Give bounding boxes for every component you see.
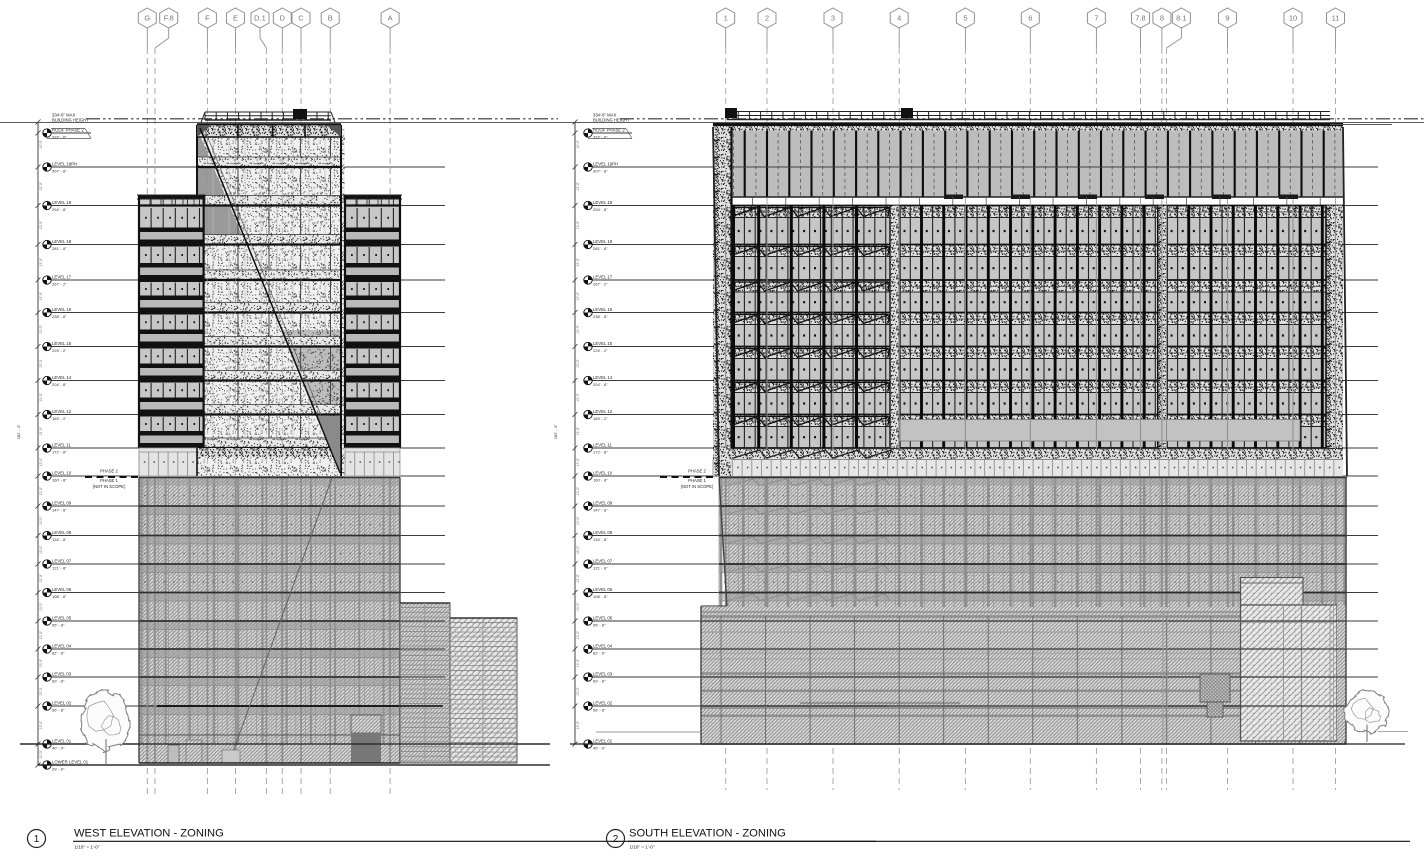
svg-text:281' - 8": 281' - 8" xyxy=(593,246,608,251)
svg-text:B: B xyxy=(328,14,333,23)
svg-text:BUILDING HEIGHT: BUILDING HEIGHT xyxy=(593,118,630,123)
svg-text:LEVEL 18: LEVEL 18 xyxy=(593,239,613,244)
svg-text:13'-0": 13'-0" xyxy=(576,220,580,229)
svg-text:LEVEL 04: LEVEL 04 xyxy=(52,644,72,649)
svg-text:PHASE 2: PHASE 2 xyxy=(688,469,706,474)
svg-text:LEVEL 08: LEVEL 08 xyxy=(52,530,72,535)
svg-text:172' - 8": 172' - 8" xyxy=(593,450,608,455)
svg-text:1: 1 xyxy=(724,14,728,23)
svg-text:56' - 8": 56' - 8" xyxy=(593,708,606,713)
svg-text:F: F xyxy=(205,14,210,23)
svg-text:13'-0": 13'-0" xyxy=(39,220,43,229)
svg-text:13'-0": 13'-0" xyxy=(576,291,580,300)
svg-text:40' - 0": 40' - 0" xyxy=(593,746,606,751)
svg-text:189' - 2": 189' - 2" xyxy=(593,416,608,421)
svg-text:13'-0": 13'-0" xyxy=(576,630,580,639)
svg-text:13'-0": 13'-0" xyxy=(39,457,43,466)
svg-text:LEVEL 09: LEVEL 09 xyxy=(593,501,613,506)
svg-text:LEVEL 11: LEVEL 11 xyxy=(593,443,612,448)
svg-text:LEVEL 05: LEVEL 05 xyxy=(52,616,72,621)
svg-text:13'-0": 13'-0" xyxy=(576,257,580,266)
svg-text:82' - 8": 82' - 8" xyxy=(52,651,65,656)
svg-text:225' - 2": 225' - 2" xyxy=(52,348,67,353)
svg-text:2: 2 xyxy=(765,14,769,23)
svg-text:69' - 8": 69' - 8" xyxy=(52,679,65,684)
svg-text:13'-0": 13'-0" xyxy=(39,291,43,300)
svg-text:LEVEL 09: LEVEL 09 xyxy=(52,501,72,506)
svg-text:121' - 8": 121' - 8" xyxy=(593,566,608,571)
svg-text:13'-0": 13'-0" xyxy=(576,358,580,367)
svg-text:LEVEL 10: LEVEL 10 xyxy=(52,471,72,476)
svg-text:13'-0": 13'-0" xyxy=(576,658,580,667)
svg-text:172' - 8": 172' - 8" xyxy=(52,450,67,455)
svg-text:LEVEL 04: LEVEL 04 xyxy=(593,644,613,649)
svg-text:LEVEL 01: LEVEL 01 xyxy=(593,739,613,744)
svg-text:LEVEL 15: LEVEL 15 xyxy=(593,341,613,346)
svg-text:5: 5 xyxy=(963,14,967,23)
svg-text:121' - 8": 121' - 8" xyxy=(52,566,67,571)
svg-text:8: 8 xyxy=(1160,14,1164,23)
svg-text:LEVEL 11: LEVEL 11 xyxy=(52,443,71,448)
svg-text:13'-0": 13'-0" xyxy=(576,486,580,495)
svg-text:LEVEL 08: LEVEL 08 xyxy=(593,530,613,535)
svg-text:13'-0": 13'-0" xyxy=(39,720,43,729)
svg-text:294' - 8": 294' - 8" xyxy=(52,207,67,212)
svg-text:13'-0": 13'-0" xyxy=(39,181,43,190)
svg-text:LEVEL 16: LEVEL 16 xyxy=(593,307,613,312)
svg-text:PHASE 1: PHASE 1 xyxy=(688,478,706,483)
svg-text:238' - 8": 238' - 8" xyxy=(52,314,67,319)
svg-text:1/16" = 1'-0": 1/16" = 1'-0" xyxy=(75,845,100,850)
svg-text:LEVEL 02: LEVEL 02 xyxy=(52,701,72,706)
svg-text:13'-0": 13'-0" xyxy=(576,602,580,611)
svg-text:D.1: D.1 xyxy=(254,14,266,23)
svg-text:13'-0": 13'-0" xyxy=(39,426,43,435)
svg-text:LEVEL 15: LEVEL 15 xyxy=(52,341,72,346)
svg-text:LOWER LEVEL 01: LOWER LEVEL 01 xyxy=(52,760,89,765)
svg-text:13'-0": 13'-0" xyxy=(576,139,580,148)
svg-text:1: 1 xyxy=(34,834,40,845)
svg-text:13'-0": 13'-0" xyxy=(39,257,43,266)
svg-text:108' - 8": 108' - 8" xyxy=(593,594,608,599)
svg-text:LEVEL 14: LEVEL 14 xyxy=(593,375,613,380)
svg-text:267' - 2": 267' - 2" xyxy=(593,282,608,287)
svg-text:238' - 8": 238' - 8" xyxy=(593,314,608,319)
svg-text:13'-0": 13'-0" xyxy=(576,720,580,729)
svg-text:9: 9 xyxy=(1225,14,1229,23)
svg-text:40' - 0": 40' - 0" xyxy=(52,746,65,751)
svg-text:29' - 6": 29' - 6" xyxy=(52,767,65,772)
svg-text:225' - 2": 225' - 2" xyxy=(593,348,608,353)
svg-text:LEVEL 19: LEVEL 19 xyxy=(52,200,72,205)
svg-text:D: D xyxy=(280,14,286,23)
svg-text:13'-0": 13'-0" xyxy=(39,749,43,758)
svg-text:11: 11 xyxy=(1332,14,1340,23)
svg-text:LEVEL 12: LEVEL 12 xyxy=(52,409,72,414)
svg-text:LEVEL 03: LEVEL 03 xyxy=(593,672,613,677)
svg-text:13'-0": 13'-0" xyxy=(39,573,43,582)
svg-text:95' - 8": 95' - 8" xyxy=(593,623,606,628)
svg-text:LEVEL 16: LEVEL 16 xyxy=(52,307,72,312)
svg-text:7: 7 xyxy=(1094,14,1098,23)
svg-text:8.1: 8.1 xyxy=(1176,14,1186,23)
svg-text:LEVEL 17: LEVEL 17 xyxy=(52,275,72,280)
svg-text:134' - 8": 134' - 8" xyxy=(52,537,67,542)
svg-text:LEVEL 06: LEVEL 06 xyxy=(593,587,613,592)
svg-text:95' - 8": 95' - 8" xyxy=(52,623,65,628)
svg-text:LEVEL 10: LEVEL 10 xyxy=(593,471,613,476)
svg-text:267' - 2": 267' - 2" xyxy=(52,282,67,287)
svg-text:LEVEL 19: LEVEL 19 xyxy=(593,200,613,205)
svg-text:LEVEL 17: LEVEL 17 xyxy=(593,275,613,280)
svg-text:160' - 8": 160' - 8" xyxy=(593,478,608,483)
svg-text:F.8: F.8 xyxy=(164,14,174,23)
svg-text:56' - 8": 56' - 8" xyxy=(52,708,65,713)
svg-text:13'-0": 13'-0" xyxy=(39,516,43,525)
svg-text:13'-0": 13'-0" xyxy=(39,686,43,695)
svg-text:204' - 8": 204' - 8" xyxy=(593,382,608,387)
svg-text:LEVEL 18: LEVEL 18 xyxy=(52,239,72,244)
svg-text:13'-0": 13'-0" xyxy=(576,426,580,435)
svg-text:7.8: 7.8 xyxy=(1135,14,1145,23)
svg-text:C: C xyxy=(298,14,304,23)
svg-text:LEVEL 03: LEVEL 03 xyxy=(52,672,72,677)
svg-text:189' - 2": 189' - 2" xyxy=(52,416,67,421)
svg-text:282' - 4": 282' - 4" xyxy=(553,424,558,439)
svg-text:13'-0": 13'-0" xyxy=(576,181,580,190)
svg-text:281' - 8": 281' - 8" xyxy=(52,246,67,251)
svg-text:LEVEL 05: LEVEL 05 xyxy=(593,616,613,621)
svg-text:147' - 8": 147' - 8" xyxy=(52,508,67,513)
svg-text:147' - 8": 147' - 8" xyxy=(593,508,608,513)
svg-text:13'-0": 13'-0" xyxy=(39,392,43,401)
svg-text:LEVEL 07: LEVEL 07 xyxy=(593,559,613,564)
svg-text:13'-0": 13'-0" xyxy=(576,457,580,466)
svg-text:307' - 8": 307' - 8" xyxy=(593,169,608,174)
svg-text:LEVEL 14: LEVEL 14 xyxy=(52,375,72,380)
svg-text:13'-0": 13'-0" xyxy=(576,573,580,582)
svg-text:13'-0": 13'-0" xyxy=(576,516,580,525)
svg-text:PHASE 2: PHASE 2 xyxy=(100,469,118,474)
svg-text:E: E xyxy=(233,14,238,23)
svg-text:G: G xyxy=(144,14,150,23)
svg-text:13'-0": 13'-0" xyxy=(39,486,43,495)
svg-text:LEVEL 06: LEVEL 06 xyxy=(52,587,72,592)
svg-text:A: A xyxy=(388,14,393,23)
svg-text:3: 3 xyxy=(831,14,835,23)
svg-text:(NOT IN SCOPE): (NOT IN SCOPE) xyxy=(93,484,126,489)
svg-text:204' - 8": 204' - 8" xyxy=(52,382,67,387)
svg-text:294' - 8": 294' - 8" xyxy=(593,207,608,212)
svg-text:6: 6 xyxy=(1028,14,1032,23)
svg-text:SOUTH ELEVATION - ZONING: SOUTH ELEVATION - ZONING xyxy=(629,828,786,840)
svg-text:307' - 8": 307' - 8" xyxy=(52,169,67,174)
svg-text:13'-0": 13'-0" xyxy=(39,358,43,367)
svg-text:WEST ELEVATION - ZONING: WEST ELEVATION - ZONING xyxy=(74,828,224,840)
svg-text:LEVEL 19PH: LEVEL 19PH xyxy=(52,162,77,167)
svg-text:LEVEL 07: LEVEL 07 xyxy=(52,559,72,564)
svg-text:13'-0": 13'-0" xyxy=(39,139,43,148)
svg-text:LEVEL 02: LEVEL 02 xyxy=(593,701,613,706)
svg-text:BUILDING HEIGHT: BUILDING HEIGHT xyxy=(52,118,89,123)
svg-text:69' - 8": 69' - 8" xyxy=(593,679,606,684)
svg-text:13'-0": 13'-0" xyxy=(576,324,580,333)
svg-text:82' - 8": 82' - 8" xyxy=(593,651,606,656)
svg-text:10: 10 xyxy=(1289,14,1297,23)
svg-text:13'-0": 13'-0" xyxy=(39,630,43,639)
svg-text:LEVEL 19PH: LEVEL 19PH xyxy=(593,162,618,167)
svg-text:282' - 4": 282' - 4" xyxy=(16,424,21,439)
svg-text:13'-0": 13'-0" xyxy=(39,658,43,667)
svg-text:134' - 8": 134' - 8" xyxy=(593,537,608,542)
svg-text:13'-0": 13'-0" xyxy=(39,545,43,554)
svg-text:4: 4 xyxy=(897,14,901,23)
svg-text:PHASE 1: PHASE 1 xyxy=(100,478,118,483)
svg-text:108' - 8": 108' - 8" xyxy=(52,594,67,599)
svg-text:(NOT IN SCOPE): (NOT IN SCOPE) xyxy=(681,484,714,489)
svg-text:160' - 8": 160' - 8" xyxy=(52,478,67,483)
svg-text:13'-0": 13'-0" xyxy=(576,392,580,401)
svg-text:13'-0": 13'-0" xyxy=(576,545,580,554)
svg-text:13'-0": 13'-0" xyxy=(39,602,43,611)
svg-text:13'-0": 13'-0" xyxy=(576,686,580,695)
svg-text:2: 2 xyxy=(613,834,619,845)
svg-text:LEVEL 12: LEVEL 12 xyxy=(593,409,613,414)
svg-text:1/16" = 1'-0": 1/16" = 1'-0" xyxy=(630,845,655,850)
svg-text:LEVEL 01: LEVEL 01 xyxy=(52,739,72,744)
svg-text:13'-0": 13'-0" xyxy=(39,324,43,333)
